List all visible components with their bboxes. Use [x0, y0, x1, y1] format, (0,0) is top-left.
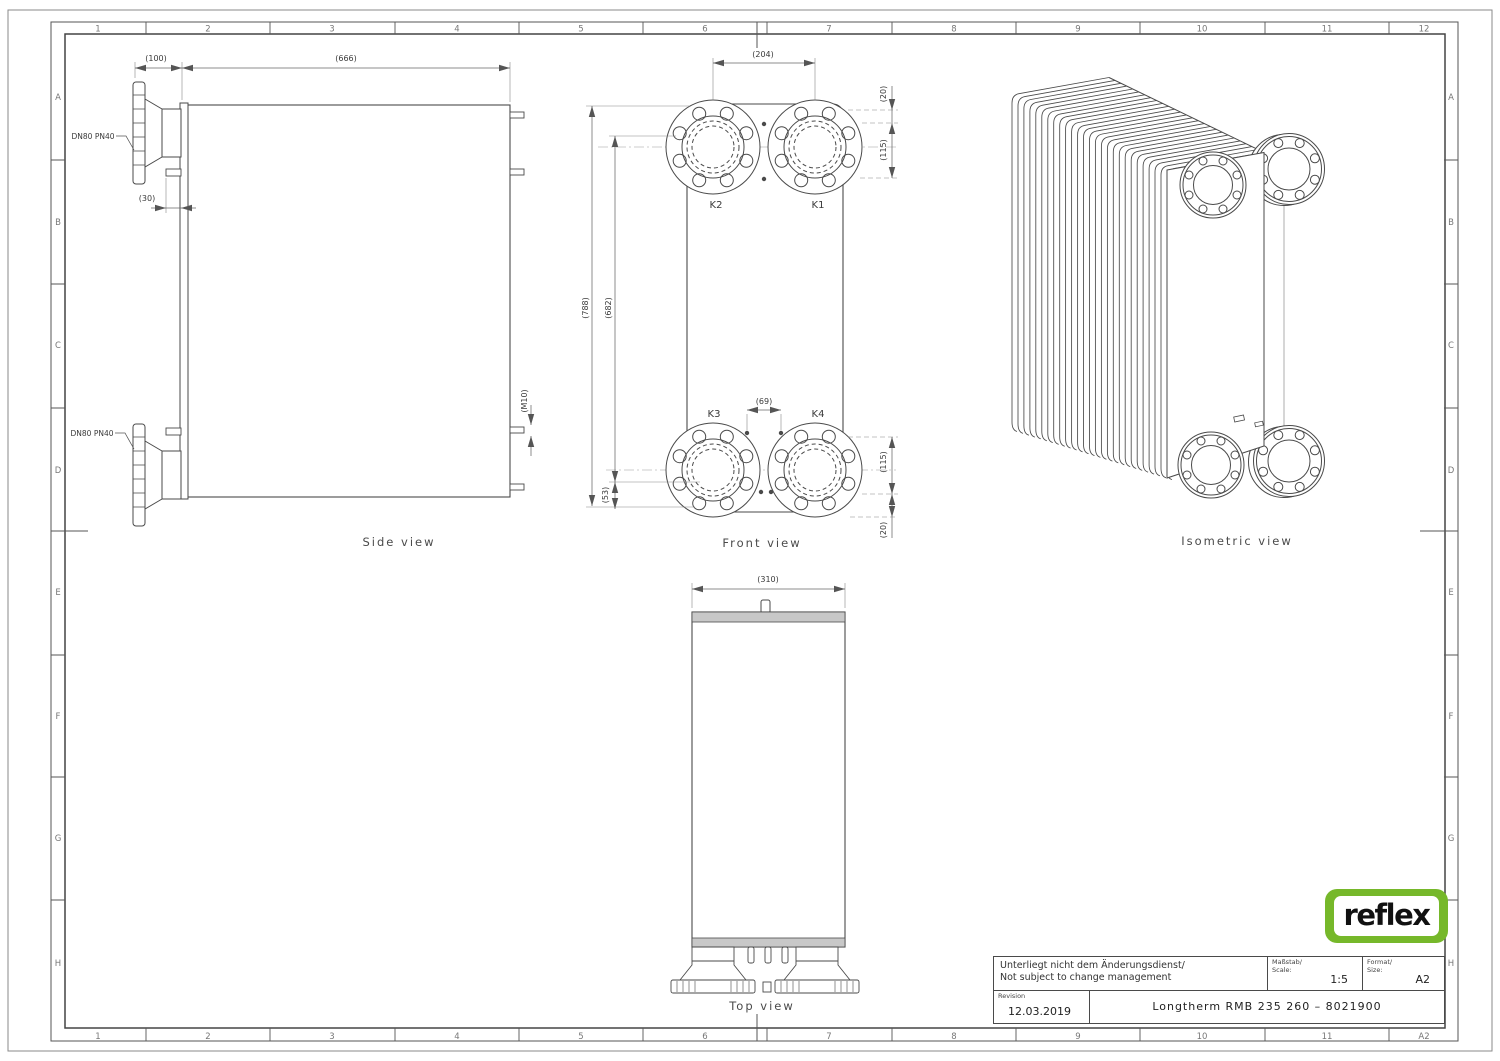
- ruler-row-left-E: E: [55, 588, 60, 598]
- nozzle-label-top: DN80 PN40: [72, 132, 115, 141]
- isometric-view-label: Isometric view: [1181, 534, 1293, 548]
- cad-canvas: 1234567891011121234567891011A2AABBCCDDEE…: [0, 0, 1500, 1061]
- dim-310: (310): [757, 575, 779, 584]
- ruler-col-bottom-3: 3: [329, 1032, 334, 1042]
- ruler-row-right-B: B: [1448, 218, 1454, 228]
- plate-edge: [1036, 89, 1133, 439]
- reflex-logo: reflex: [1325, 889, 1448, 943]
- ruler-col-top-3: 3: [329, 25, 334, 35]
- ruler-col-bottom-10: 10: [1197, 1032, 1208, 1042]
- side-view-end-plate: [180, 103, 188, 499]
- ruler-row-left-A: A: [55, 93, 61, 103]
- plate-edge: [1054, 98, 1151, 445]
- ruler-col-top-4: 4: [454, 25, 459, 35]
- ruler-col-top-7: 7: [826, 25, 831, 35]
- front-view: (204) (20) (115) (788) (682) (53) (115) …: [581, 50, 898, 550]
- top-view: (310) Top view: [671, 575, 859, 1013]
- ruler-row-right-E: E: [1448, 588, 1453, 598]
- flange-k1: [768, 100, 862, 194]
- ruler-col-bottom-8: 8: [951, 1032, 956, 1042]
- dim-115-bottom: (115): [879, 451, 888, 473]
- top-view-end-plate-bottom: [692, 938, 845, 947]
- reflex-logo-inner: reflex: [1334, 896, 1439, 936]
- ruler-col-bottom-1: 1: [95, 1032, 100, 1042]
- reflex-logo-text: reflex: [1344, 901, 1430, 930]
- plate-edge: [1030, 86, 1127, 437]
- dim-69: (69): [756, 397, 772, 406]
- ruler-col-top-10: 10: [1197, 25, 1208, 35]
- dim-666: (666): [335, 54, 357, 63]
- flange-k3: [666, 423, 760, 517]
- plate-edge: [1072, 106, 1169, 450]
- change-note-line1: Unterliegt nicht dem Änderungsdienst/: [1000, 960, 1261, 972]
- ruler-row-left-F: F: [56, 712, 61, 722]
- plate-edge: [1048, 95, 1145, 443]
- dim-m10: (M10): [520, 389, 529, 412]
- ruler-col-top-9: 9: [1075, 25, 1080, 35]
- ruler-col-bottom-7: 7: [826, 1032, 831, 1042]
- dim-115-top: (115): [879, 139, 888, 161]
- ruler-col-bottom-9: 9: [1075, 1032, 1080, 1042]
- ruler-row-left-C: C: [55, 341, 61, 351]
- plate-edge: [1084, 112, 1181, 454]
- ruler-col-top-12: 12: [1419, 25, 1430, 35]
- ruler-col-bottom-6: 6: [702, 1032, 707, 1042]
- ruler-col-top-2: 2: [205, 25, 210, 35]
- change-note-line2: Not subject to change management: [1000, 972, 1261, 984]
- iso-flange-near-bottom: [1178, 432, 1244, 498]
- port-label-k1: K1: [812, 200, 825, 211]
- dim-100: (100): [145, 54, 167, 63]
- ruler-row-left-D: D: [55, 466, 62, 476]
- port-label-k3: K3: [708, 409, 721, 420]
- ruler-col-bottom-4: 4: [454, 1032, 459, 1042]
- dim-30: (30): [139, 194, 155, 203]
- top-view-body: [692, 612, 845, 947]
- ruler-col-top-6: 6: [702, 25, 707, 35]
- dim-788: (788): [581, 297, 590, 319]
- ruler-row-right-C: C: [1448, 341, 1454, 351]
- ruler-col-bottom-2: 2: [205, 1032, 210, 1042]
- scale-label-en: Scale:: [1272, 967, 1302, 975]
- scale-value: 1:5: [1330, 973, 1348, 986]
- dim-204: (204): [752, 50, 774, 59]
- plate-edge: [1018, 80, 1115, 433]
- revision-label: Revision: [998, 993, 1025, 1001]
- title-block: Unterliegt nicht dem Änderungsdienst/ No…: [993, 956, 1445, 1024]
- ruler-row-right-A: A: [1448, 93, 1454, 103]
- format-cell: Format/ Size: A2: [1363, 957, 1444, 990]
- flange-k4: [768, 423, 862, 517]
- plate-edge: [1012, 78, 1109, 432]
- flange-k2: [666, 100, 760, 194]
- side-view-flange-bottom: [133, 424, 181, 526]
- dim-20-top: (20): [879, 86, 888, 102]
- format-label-en: Size:: [1367, 967, 1392, 975]
- plate-edge: [1060, 101, 1157, 447]
- iso-flange-near-top: [1180, 152, 1246, 218]
- plate-edge: [1024, 83, 1121, 435]
- ruler-row-right-G: G: [1448, 834, 1455, 844]
- ruler-col-top-11: 11: [1322, 25, 1333, 35]
- ruler-col-bottom-A2: A2: [1418, 1032, 1429, 1042]
- top-view-nozzles: [671, 947, 859, 993]
- plate-edge: [1066, 103, 1163, 448]
- side-view: (100) (666) (30) (M10) DN80 PN40 DN80 PN…: [71, 54, 532, 549]
- format-value: A2: [1415, 973, 1430, 986]
- ruler-row-left-B: B: [55, 218, 61, 228]
- isometric-view: Isometric view: [1012, 78, 1325, 549]
- front-view-label: Front view: [722, 536, 801, 550]
- dim-20-bottom: (20): [879, 522, 888, 538]
- change-note: Unterliegt nicht dem Änderungsdienst/ No…: [994, 957, 1268, 990]
- port-label-k4: K4: [812, 409, 825, 420]
- top-view-stud-top: [761, 600, 770, 613]
- ruler-col-top-5: 5: [578, 25, 583, 35]
- side-view-body: [187, 105, 510, 497]
- revision-cell: Revision 12.03.2019: [994, 991, 1090, 1024]
- ruler-row-right-D: D: [1448, 466, 1455, 476]
- top-view-label: Top view: [728, 999, 795, 1013]
- plate-edge: [1078, 109, 1175, 452]
- nozzle-label-bottom: DN80 PN40: [71, 429, 114, 438]
- top-view-end-plate-top: [692, 612, 845, 622]
- drawing-title: Longtherm RMB 235 260 – 8021900: [1090, 991, 1444, 1024]
- ruler-row-left-H: H: [55, 959, 61, 969]
- top-face-far-edge: [1109, 78, 1264, 153]
- plate-edge: [1042, 92, 1139, 441]
- port-label-k2: K2: [710, 200, 723, 211]
- drawing-sheet: 1234567891011121234567891011A2AABBCCDDEE…: [0, 0, 1500, 1061]
- dim-682: (682): [604, 297, 613, 319]
- side-view-label: Side view: [362, 535, 435, 549]
- revision-date: 12.03.2019: [1008, 1005, 1071, 1018]
- ruler-row-right-H: H: [1448, 959, 1454, 969]
- scale-cell: Maßstab/ Scale: 1:5: [1268, 957, 1363, 990]
- ruler-col-bottom-11: 11: [1322, 1032, 1333, 1042]
- dim-53: (53): [601, 487, 610, 503]
- ruler-row-left-G: G: [55, 834, 62, 844]
- ruler-col-top-1: 1: [95, 25, 100, 35]
- ruler-row-right-F: F: [1449, 712, 1454, 722]
- ruler-col-bottom-5: 5: [578, 1032, 583, 1042]
- ruler-col-top-8: 8: [951, 25, 956, 35]
